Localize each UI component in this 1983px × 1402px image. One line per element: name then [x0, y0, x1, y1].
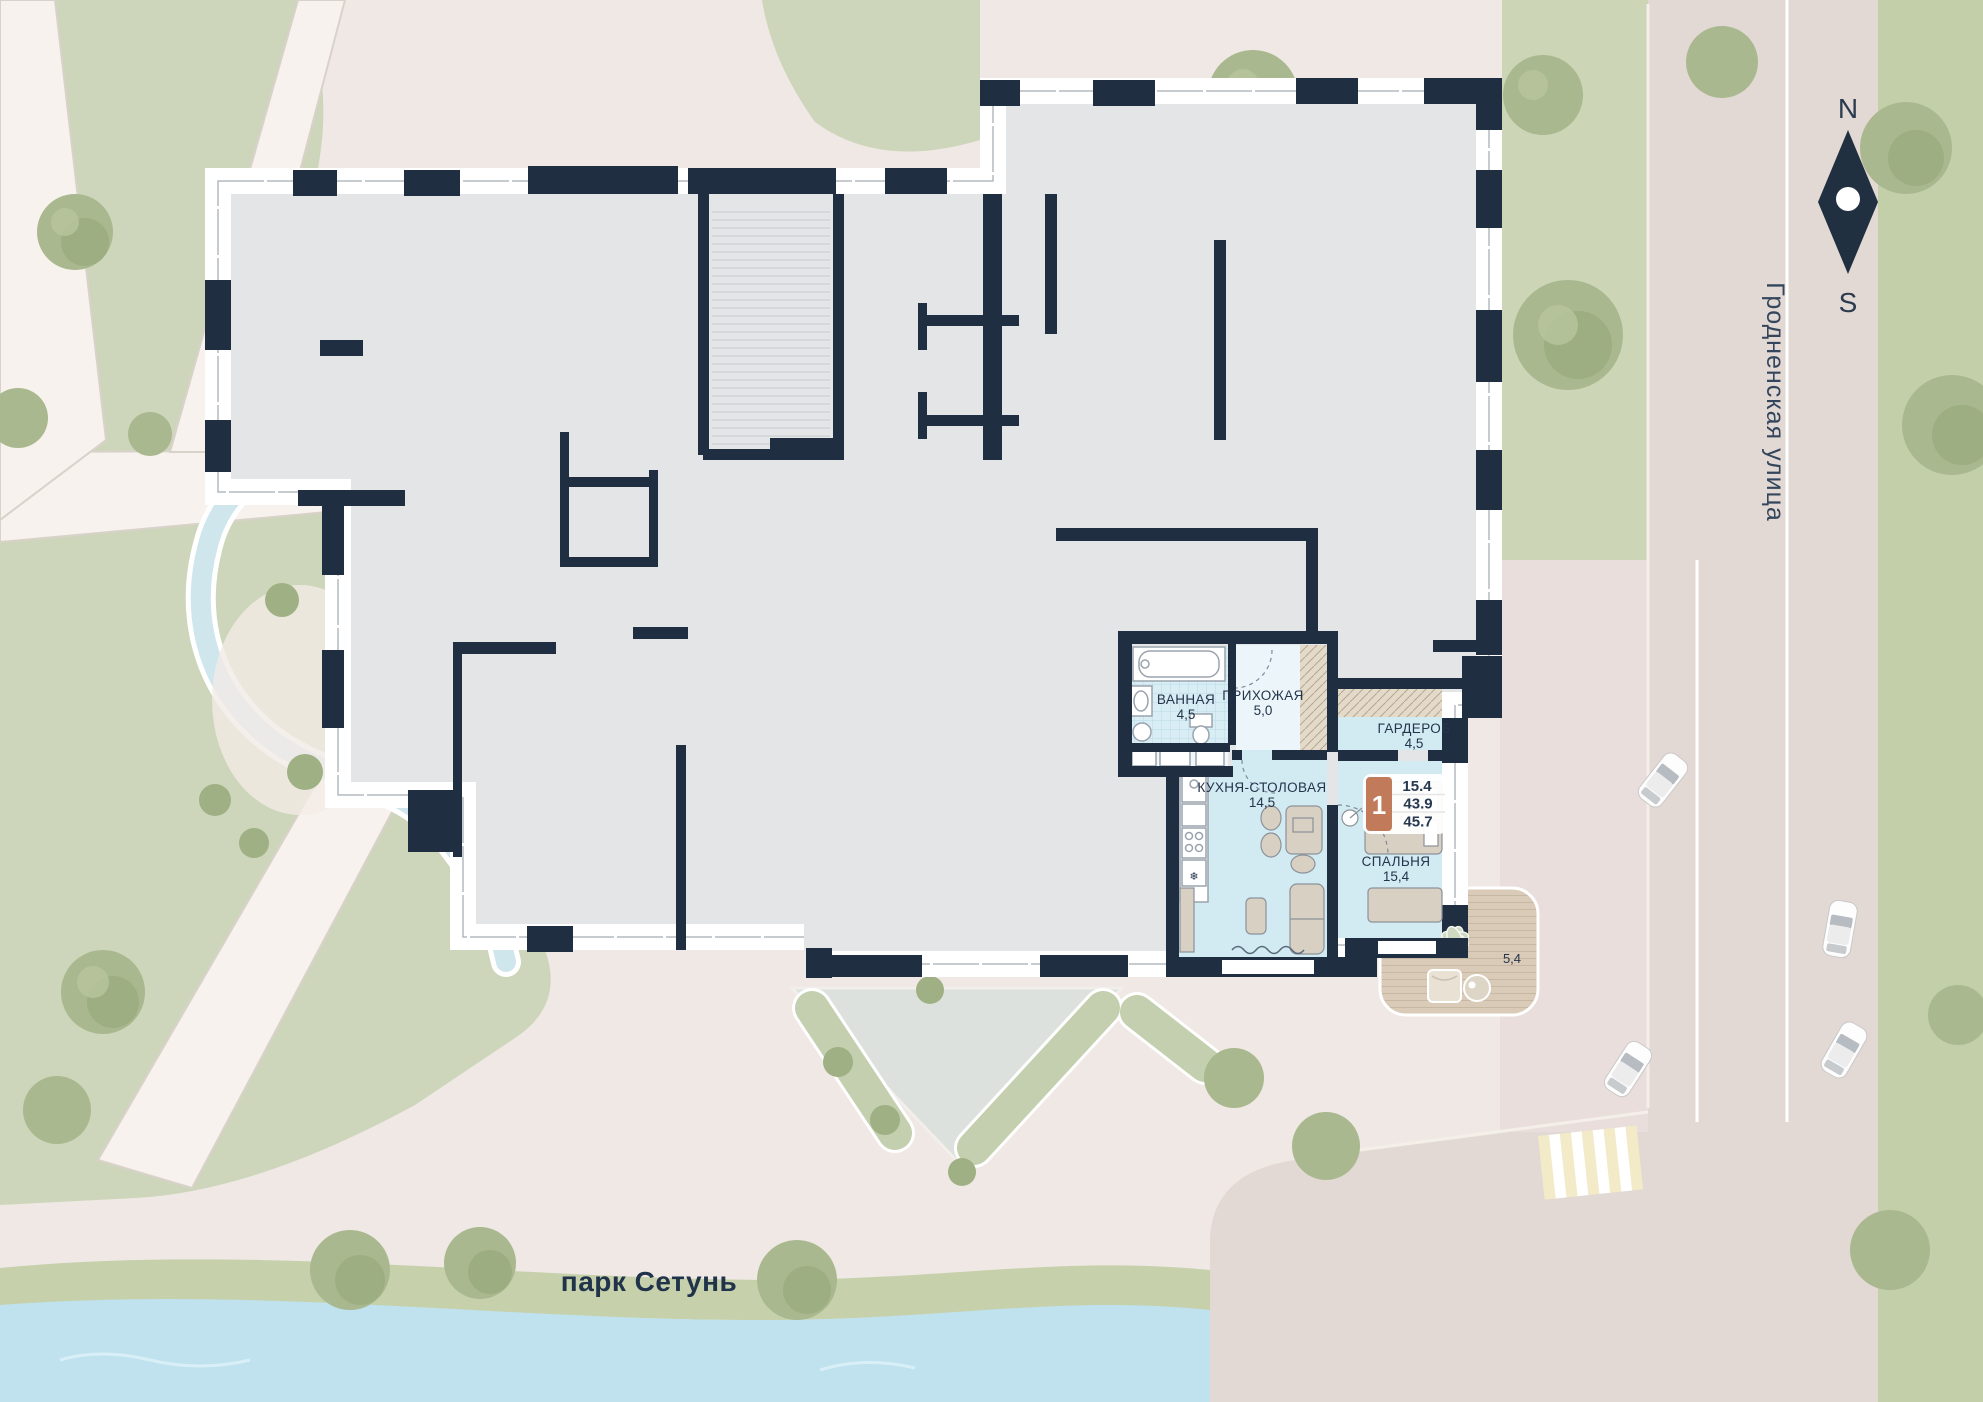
compass-south-label: S [1839, 287, 1858, 318]
badge-area-apartment: 43.9 [1403, 796, 1432, 813]
room-area-wardrobe: 4,5 [1405, 736, 1424, 751]
compass-north-label: N [1838, 93, 1858, 124]
apartment-badge[interactable]: 1 15.4 43.9 45.7 [1363, 774, 1447, 834]
compass-pivot [1836, 187, 1860, 211]
room-name-bedroom: СПАЛЬНЯ [1362, 854, 1431, 869]
site-plan: 5,4 [0, 0, 1983, 1402]
floor-plan-canvas: 5,4 [0, 0, 1983, 1402]
window-bedroom [1378, 941, 1436, 954]
room-name-wardrobe: ГАРДЕРОБ [1378, 721, 1451, 736]
room-area-bathroom: 4,5 [1177, 707, 1196, 722]
wardrobe-rack [1338, 689, 1442, 717]
badge-number: 1 [1372, 790, 1386, 820]
cup-icon [1469, 982, 1476, 989]
room-area-kitchen: 14,5 [1249, 795, 1275, 810]
pedestrian-crossing [1538, 1126, 1643, 1200]
room-name-hallway: ПРИХОЖАЯ [1222, 688, 1304, 703]
badge-area-total: 45.7 [1403, 814, 1432, 831]
park-label: парк Сетунь [561, 1266, 737, 1297]
room-name-bathroom: ВАННАЯ [1157, 692, 1215, 707]
room-name-kitchen: КУХНЯ-СТОЛОВАЯ [1197, 780, 1326, 795]
room-area-bedroom: 15,4 [1383, 869, 1410, 884]
badge-area-living: 15.4 [1402, 778, 1432, 795]
stair-core [712, 205, 830, 445]
terrace-chair [1428, 970, 1461, 1002]
apartment-unit[interactable]: ❄ [1118, 631, 1471, 977]
street-label: Гродненская улица [1761, 282, 1789, 522]
window-kitchen [1222, 960, 1314, 974]
room-area-hallway: 5,0 [1254, 703, 1273, 718]
terrace-area-label: 5,4 [1503, 951, 1521, 966]
terrace-table [1464, 975, 1490, 1001]
hall-closet [1300, 645, 1327, 750]
fridge-icon: ❄ [1189, 871, 1198, 883]
